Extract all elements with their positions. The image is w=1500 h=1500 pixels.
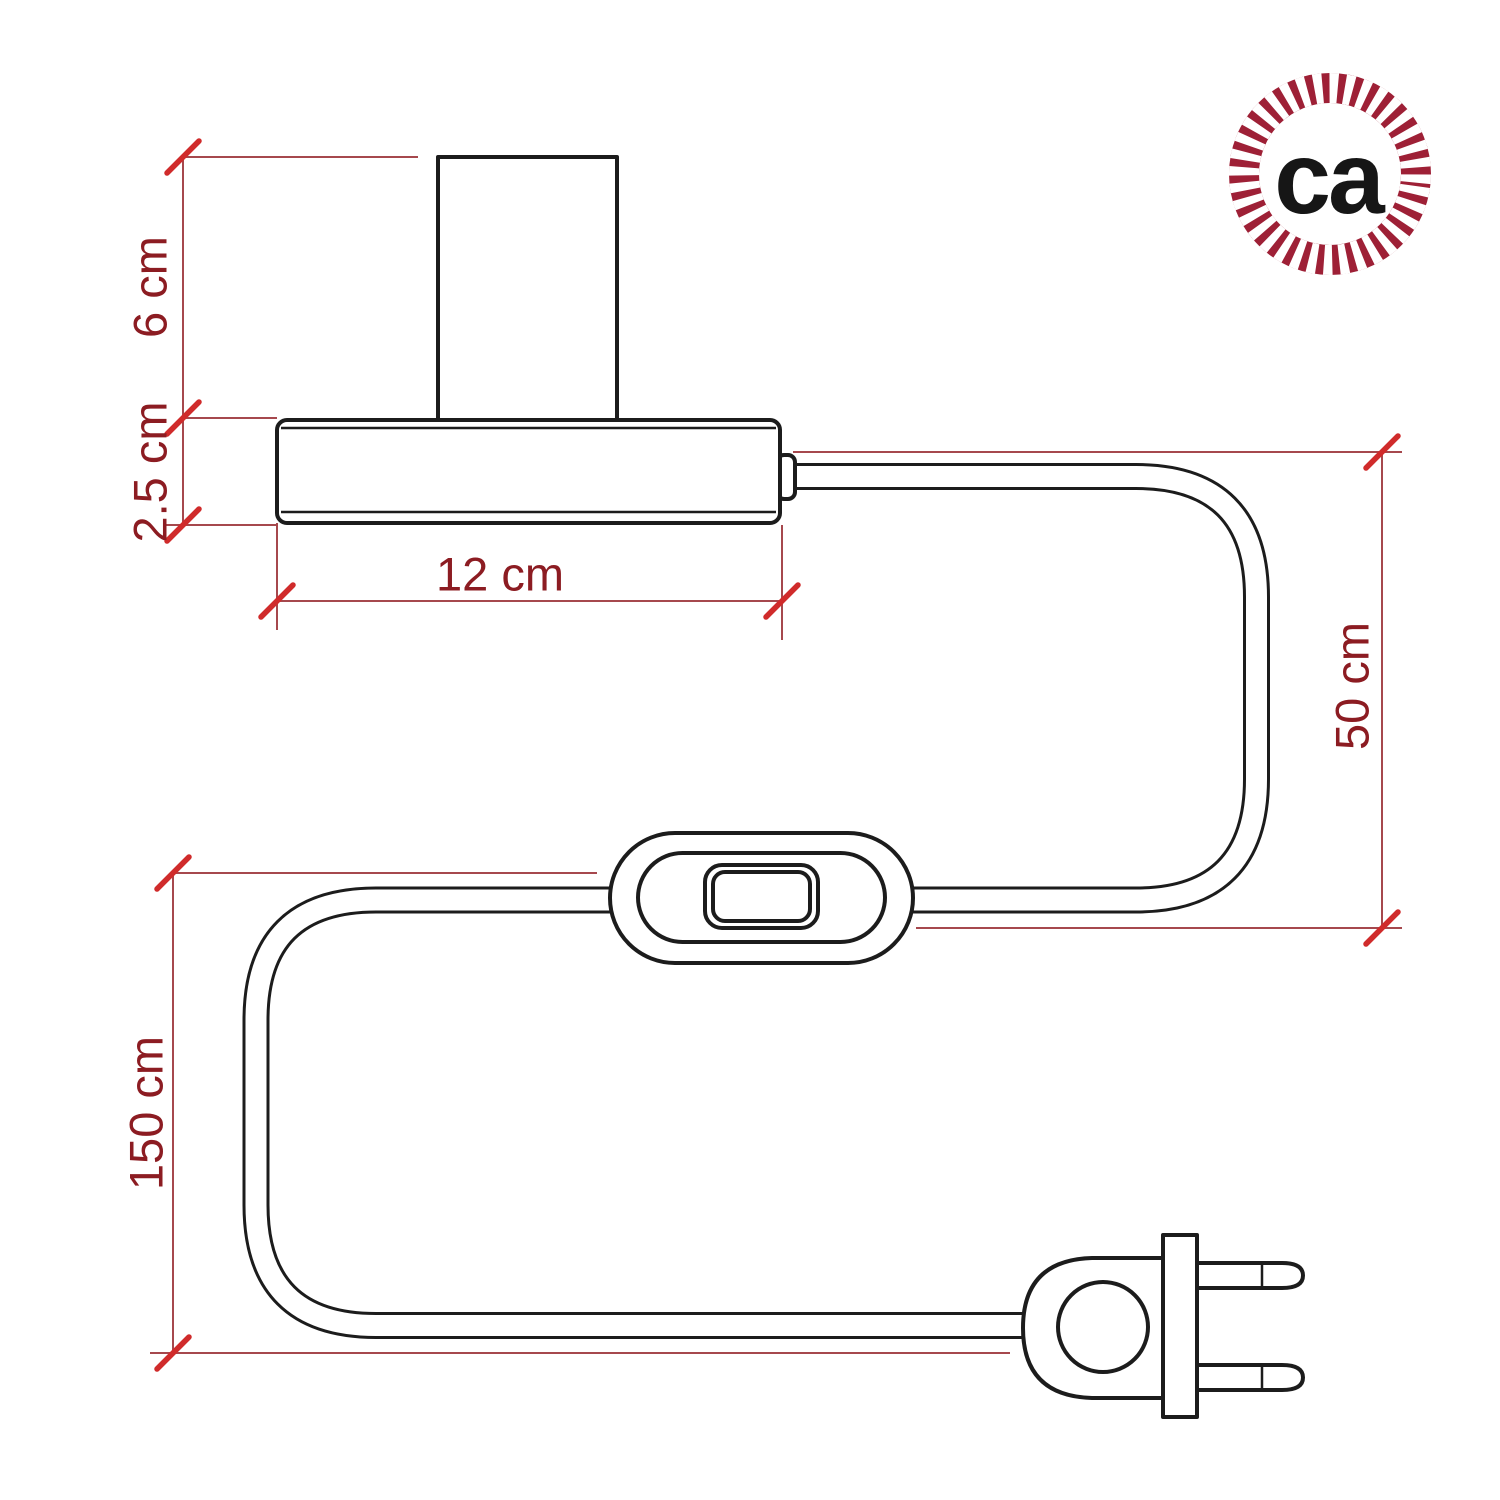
plug-face-plate	[1163, 1235, 1197, 1417]
dimension-socket-height: 6 cm	[124, 141, 419, 418]
brand-logo: ca	[1233, 77, 1427, 271]
dimension-base-width: 12 cm	[261, 523, 798, 640]
lamp-base	[277, 420, 780, 523]
logo-text: ca	[1274, 121, 1386, 235]
inline-switch	[610, 833, 913, 963]
dimension-label-cable-50: 50 cm	[1326, 622, 1379, 750]
plug-pin-top	[1197, 1263, 1303, 1288]
dimension-label-base-height: 2.5 cm	[124, 401, 177, 542]
dimension-base-height: 2.5 cm	[124, 401, 278, 542]
lamp-base-outline	[277, 420, 780, 523]
dimension-label-cable-150: 150 cm	[120, 1036, 173, 1190]
diagram-canvas: 6 cm 2.5 cm 12 cm 50 cm 150 cm c	[0, 0, 1500, 1500]
plug-body-circle	[1058, 1282, 1148, 1372]
lamp-socket	[438, 157, 617, 424]
plug-pin-bottom	[1197, 1365, 1303, 1390]
switch-button	[705, 865, 818, 928]
cable-switch-to-plug-run	[256, 900, 1060, 1326]
technical-drawing: 6 cm 2.5 cm 12 cm 50 cm 150 cm c	[0, 0, 1500, 1500]
dimension-label-base-width: 12 cm	[436, 548, 564, 601]
power-plug	[1023, 1235, 1303, 1417]
cable-switch-to-plug-core	[256, 900, 1060, 1326]
dimension-label-socket-height: 6 cm	[124, 236, 177, 338]
